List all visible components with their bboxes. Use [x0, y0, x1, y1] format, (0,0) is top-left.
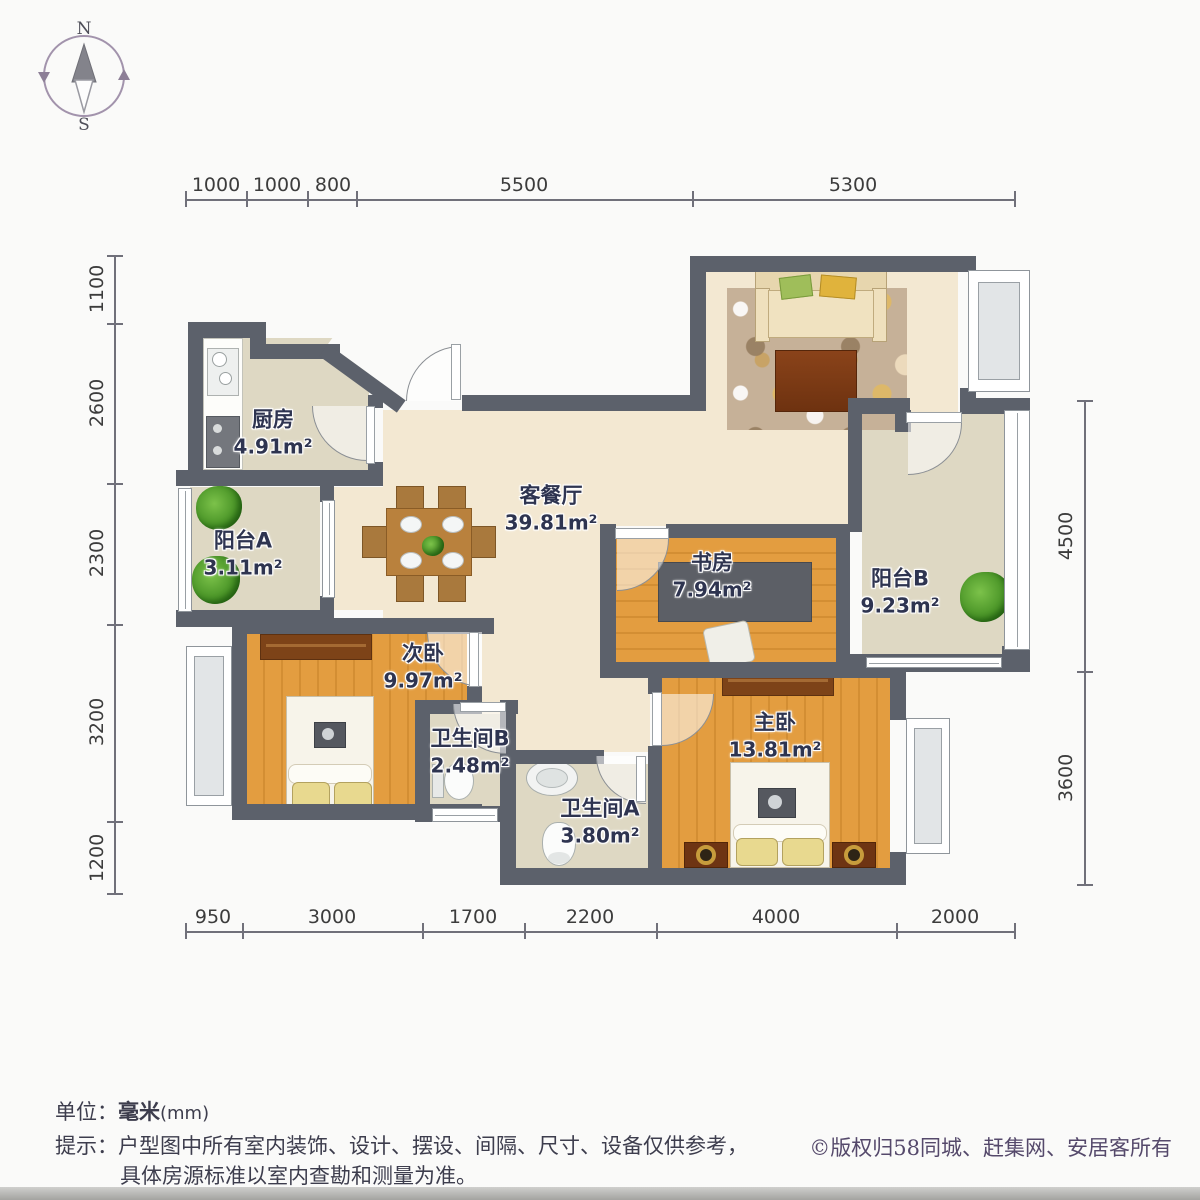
- room-label-balcony-b: 阳台B 9.23m²: [861, 565, 940, 618]
- room-name: 阳台B: [861, 565, 940, 592]
- dim-value: 3000: [308, 906, 356, 928]
- tick: [107, 893, 123, 895]
- bathroom-b-door: [460, 702, 506, 712]
- tick: [1077, 671, 1093, 673]
- room-label-study: 书房 7.94m²: [673, 549, 752, 602]
- room-label-bathroom-b: 卫生间B 2.48m²: [430, 725, 509, 778]
- tick: [242, 923, 244, 939]
- lamp-icon: [844, 845, 864, 865]
- study-door: [615, 528, 669, 539]
- window-sill: [866, 657, 1002, 668]
- dim-value: 1000: [192, 174, 240, 196]
- tick: [656, 923, 658, 939]
- dim-value: 2200: [566, 906, 614, 928]
- dim-value: 2000: [931, 906, 979, 928]
- wall: [836, 524, 850, 676]
- tick: [1077, 400, 1093, 402]
- dimension-line: [1084, 400, 1086, 886]
- wall: [467, 618, 482, 632]
- pillow: [782, 838, 824, 866]
- dim-value: 1200: [86, 834, 108, 882]
- copyright-note: ©版权归58同城、赶集网、安居客所有: [809, 1132, 1172, 1162]
- wall: [368, 462, 383, 476]
- tick: [185, 923, 187, 939]
- tick: [107, 255, 123, 257]
- window: [178, 488, 192, 612]
- wall: [648, 746, 662, 885]
- bedroom-second-door: [469, 632, 479, 687]
- sink-basin-icon: [219, 372, 232, 385]
- window-mullion-icon: [435, 815, 495, 816]
- dim-value: 4500: [1055, 512, 1077, 560]
- room-area: 39.81m²: [505, 510, 598, 536]
- room-area: 3.11m²: [204, 555, 283, 581]
- dim-value: 3200: [86, 698, 108, 746]
- wall: [690, 256, 976, 272]
- room-area: 9.23m²: [861, 593, 940, 619]
- dining-chair: [396, 574, 424, 602]
- master-door: [652, 692, 662, 746]
- dim-value: 1000: [253, 174, 301, 196]
- window-mullion-icon: [329, 503, 330, 595]
- room-area: 13.81m²: [729, 737, 822, 763]
- dim-value: 5500: [500, 174, 548, 196]
- room-name: 主卧: [729, 709, 822, 736]
- wall: [600, 662, 905, 678]
- dim-value: 5300: [829, 174, 877, 196]
- wall: [600, 524, 616, 676]
- wall: [600, 524, 616, 538]
- stove-burner-icon: [213, 424, 222, 433]
- room-name: 卫生间A: [560, 795, 639, 822]
- tick: [307, 191, 309, 207]
- room-name: 阳台A: [204, 527, 283, 554]
- room-name: 次卧: [384, 640, 463, 667]
- wardrobe: [260, 634, 372, 660]
- toilet-seat-icon: [548, 852, 570, 864]
- compass-needle-south-icon: [75, 80, 93, 112]
- tick: [1014, 923, 1016, 939]
- wall: [232, 618, 247, 820]
- window-mullion-icon: [1017, 413, 1018, 647]
- dim-value: 1700: [449, 906, 497, 928]
- window-mullion-icon: [869, 663, 999, 664]
- plate-icon: [442, 516, 464, 533]
- wall: [666, 524, 850, 538]
- kitchen-door: [366, 406, 375, 464]
- wall: [690, 256, 706, 411]
- dimension-line: [114, 255, 116, 895]
- compass-north-label: N: [77, 19, 92, 39]
- balcony-b-door: [906, 412, 962, 423]
- sofa-pillow-green: [779, 274, 813, 300]
- sink-basin-icon: [536, 768, 568, 788]
- room-area: 3.80m²: [560, 823, 639, 849]
- dim-value: 3600: [1055, 754, 1077, 802]
- dimension-line: [185, 199, 1016, 201]
- wall: [516, 750, 604, 764]
- tick: [356, 191, 358, 207]
- tick: [422, 923, 424, 939]
- entrance-door: [451, 344, 461, 400]
- sofa-pillow-yellow: [819, 274, 857, 299]
- dining-chair: [470, 526, 496, 558]
- room-label-master-bedroom: 主卧 13.81m²: [729, 709, 822, 762]
- dim-value: 800: [315, 174, 351, 196]
- window-mullion-icon: [185, 491, 186, 609]
- wall: [890, 852, 906, 885]
- wall: [890, 662, 906, 720]
- room-name: 书房: [673, 549, 752, 576]
- wall: [188, 322, 203, 486]
- room-name: 厨房: [234, 406, 313, 433]
- room-area: 2.48m²: [430, 753, 509, 779]
- bay-window-glass: [914, 728, 942, 844]
- bed-device-lens-icon: [768, 795, 782, 809]
- tick: [185, 191, 187, 207]
- bed-bolster: [288, 764, 372, 784]
- room-area: 7.94m²: [673, 577, 752, 603]
- compass: N S: [26, 18, 142, 134]
- compass-needle-north-icon: [72, 44, 96, 82]
- dim-value: 1100: [86, 265, 108, 313]
- room-label-bathroom-a: 卫生间A 3.80m²: [560, 795, 639, 848]
- compass-arrow-left-icon: [38, 72, 50, 83]
- lamp-icon: [696, 845, 716, 865]
- pillow: [736, 838, 778, 866]
- compass-south-label: S: [78, 115, 90, 134]
- wall: [320, 470, 334, 502]
- bed-device-lens-icon: [322, 728, 334, 740]
- tip-text: 户型图中所有室内装饰、设计、摆设、间隔、尺寸、设备仅供参考，: [118, 1134, 748, 1158]
- bay-window-glass: [978, 282, 1020, 380]
- dim-value: 2300: [86, 529, 108, 577]
- room-name: 卫生间B: [430, 725, 509, 752]
- tick: [107, 821, 123, 823]
- room-label-balcony-a: 阳台A 3.11m²: [204, 527, 283, 580]
- wall: [962, 398, 1008, 414]
- tick: [107, 624, 123, 626]
- unit-label: 单位：: [55, 1100, 118, 1124]
- wall: [176, 470, 334, 486]
- plate-icon: [400, 552, 422, 569]
- wall: [500, 868, 665, 885]
- room-label-kitchen: 厨房 4.91m²: [234, 406, 313, 459]
- room-name: 客餐厅: [505, 482, 598, 509]
- tick: [246, 191, 248, 207]
- dim-value: 4000: [752, 906, 800, 928]
- wall: [848, 412, 862, 532]
- sofa-armrest: [872, 288, 887, 342]
- compass-arrow-right-icon: [118, 69, 130, 80]
- tip-note-line2: 具体房源标准以室内查勘和测量为准。: [120, 1160, 477, 1190]
- wardrobe-rail-icon: [266, 644, 366, 647]
- bay-window-glass: [194, 656, 224, 796]
- tip-text: 具体房源标准以室内查勘和测量为准。: [120, 1164, 477, 1188]
- room-area: 4.91m²: [234, 434, 313, 460]
- dining-chair: [438, 574, 466, 602]
- tip-note-line1: 提示：户型图中所有室内装饰、设计、摆设、间隔、尺寸、设备仅供参考，: [55, 1130, 748, 1160]
- unit-value: 毫米: [118, 1100, 160, 1124]
- tick: [107, 483, 123, 485]
- wall: [648, 868, 906, 885]
- room-area: 9.97m²: [384, 668, 463, 694]
- tick: [107, 323, 123, 325]
- room-label-living-dining: 客餐厅 39.81m²: [505, 482, 598, 535]
- dim-value: 950: [195, 906, 231, 928]
- coffee-table: [775, 350, 857, 412]
- dining-chair: [362, 526, 388, 558]
- tick: [524, 923, 526, 939]
- tick: [896, 923, 898, 939]
- plate-icon: [400, 516, 422, 533]
- window: [1004, 410, 1030, 650]
- dimension-line: [185, 931, 1016, 933]
- wall: [462, 395, 705, 411]
- dim-value: 2600: [86, 379, 108, 427]
- tick: [692, 191, 694, 207]
- window-sill: [432, 808, 498, 822]
- tick: [1077, 884, 1093, 886]
- tip-label: 提示：: [55, 1134, 118, 1158]
- sink-basin-icon: [212, 352, 227, 367]
- wall: [415, 700, 430, 822]
- unit-note: 单位：毫米(mm): [55, 1096, 209, 1126]
- tick: [1014, 191, 1016, 207]
- sliding-window: [322, 500, 335, 598]
- stove-burner-icon: [213, 446, 222, 455]
- unit-suffix: (mm): [160, 1103, 209, 1124]
- wardrobe-rail-icon: [728, 679, 828, 682]
- floor-corridor: [600, 676, 648, 752]
- bottom-edge-bar: [0, 1187, 1200, 1200]
- plate-icon: [442, 552, 464, 569]
- room-label-bedroom-second: 次卧 9.97m²: [384, 640, 463, 693]
